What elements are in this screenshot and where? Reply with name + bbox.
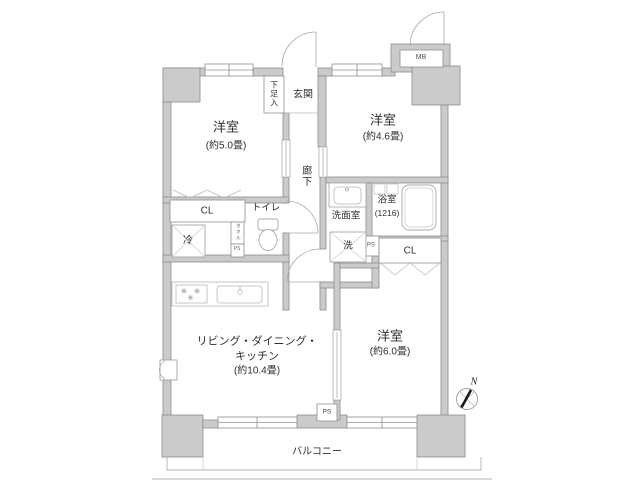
- room-label-bedroom2: 洋室: [370, 114, 396, 129]
- window-balcony-left: [218, 417, 297, 428]
- mb-door: [410, 12, 444, 46]
- floor-plan-drawing: [0, 0, 625, 500]
- label-balcony: バルコニー: [292, 446, 342, 458]
- toilet-fixture: [258, 219, 278, 251]
- sliding-door-bedroom2: [319, 147, 327, 177]
- label-towel-shaft: タオル: [234, 223, 240, 241]
- room-size-bedroom3: (約6.0畳): [370, 346, 411, 358]
- washroom-door: [287, 249, 320, 282]
- label-closet2: CL: [404, 245, 417, 257]
- label-shoe-cabinet: 下足入: [269, 81, 278, 108]
- room-label-toilet: トイレ: [252, 204, 281, 215]
- kitchen-sink: [217, 286, 262, 303]
- room-size-bedroom1: (約5.0畳): [206, 140, 247, 152]
- sliding-door-bedroom1: [282, 140, 290, 177]
- window-balcony-right: [347, 417, 417, 428]
- label-ps-shaft: PS: [234, 247, 241, 253]
- washstand: [329, 183, 366, 207]
- sliding-door-ldk: [333, 330, 341, 400]
- room-label-entrance: 玄関: [293, 89, 313, 101]
- kitchen-counter: [172, 282, 268, 306]
- label-mb: MB: [416, 54, 427, 62]
- window-bedroom2: [332, 64, 382, 76]
- room-label-bedroom1: 洋室: [213, 121, 239, 136]
- compass: [457, 389, 478, 410]
- room-label-hallway: 廊下: [299, 165, 311, 187]
- label-ps-bath: PS: [367, 243, 375, 250]
- room-label-bedroom3: 洋室: [377, 330, 403, 345]
- room-size-bathroom: (1216): [375, 209, 400, 219]
- label-ps-bottom: PS: [323, 408, 332, 415]
- room-label-bathroom: 浴室: [377, 196, 396, 207]
- window-bedroom1: [205, 64, 253, 76]
- label-north: N: [471, 376, 478, 388]
- entrance-door: [282, 32, 316, 67]
- room-label-washroom: 洗面室: [332, 212, 361, 223]
- floor-plan: 洋室 (約5.0畳) 洋室 (約4.6畳) 洋室 (約6.0畳) リビング・ダイ…: [0, 0, 625, 500]
- label-fridge: 冷: [183, 235, 193, 247]
- label-washer: 洗: [343, 242, 353, 253]
- stove: [176, 285, 207, 303]
- room-size-ldk: (約10.4畳): [234, 365, 280, 377]
- toilet-door: [286, 201, 318, 233]
- balcony-outline: [152, 457, 492, 479]
- room-label-ldk-line2: キッチン: [235, 351, 279, 364]
- bathtub: [374, 184, 436, 230]
- room-size-bedroom2: (約4.6畳): [363, 131, 404, 143]
- room-label-ldk-line1: リビング・ダイニング・: [197, 336, 318, 349]
- label-closet1: CL: [201, 205, 214, 217]
